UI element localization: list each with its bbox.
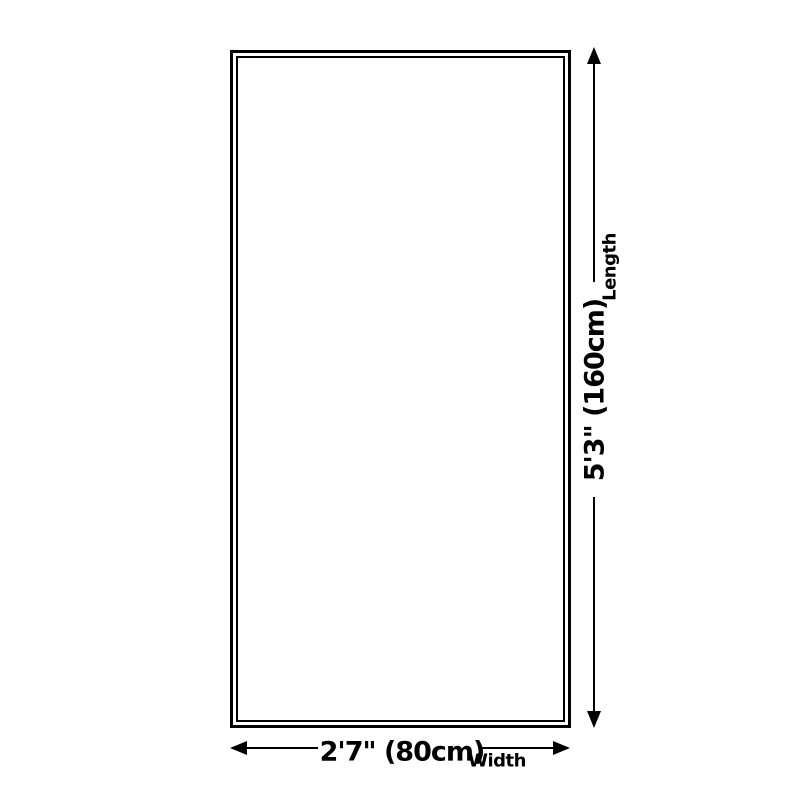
length-dimension-line-lower	[593, 497, 595, 714]
rug-outline-outer	[230, 50, 571, 728]
width-axis-label: Width	[468, 751, 526, 772]
width-dimension-line-right	[482, 747, 556, 749]
rug-outline-inner	[236, 56, 565, 722]
width-dimension-line-left	[244, 747, 318, 749]
width-value-label: 2'7" (80cm)	[320, 737, 485, 768]
length-axis-label: Length	[600, 233, 621, 301]
arrow-right-icon	[553, 741, 570, 755]
length-value-label: 5'3" (160cm)	[580, 299, 611, 481]
length-dimension-line-upper	[593, 60, 595, 282]
arrow-down-icon	[587, 711, 601, 728]
size-diagram: Length 5'3" (160cm) 2'7" (80cm) Width	[0, 0, 800, 800]
